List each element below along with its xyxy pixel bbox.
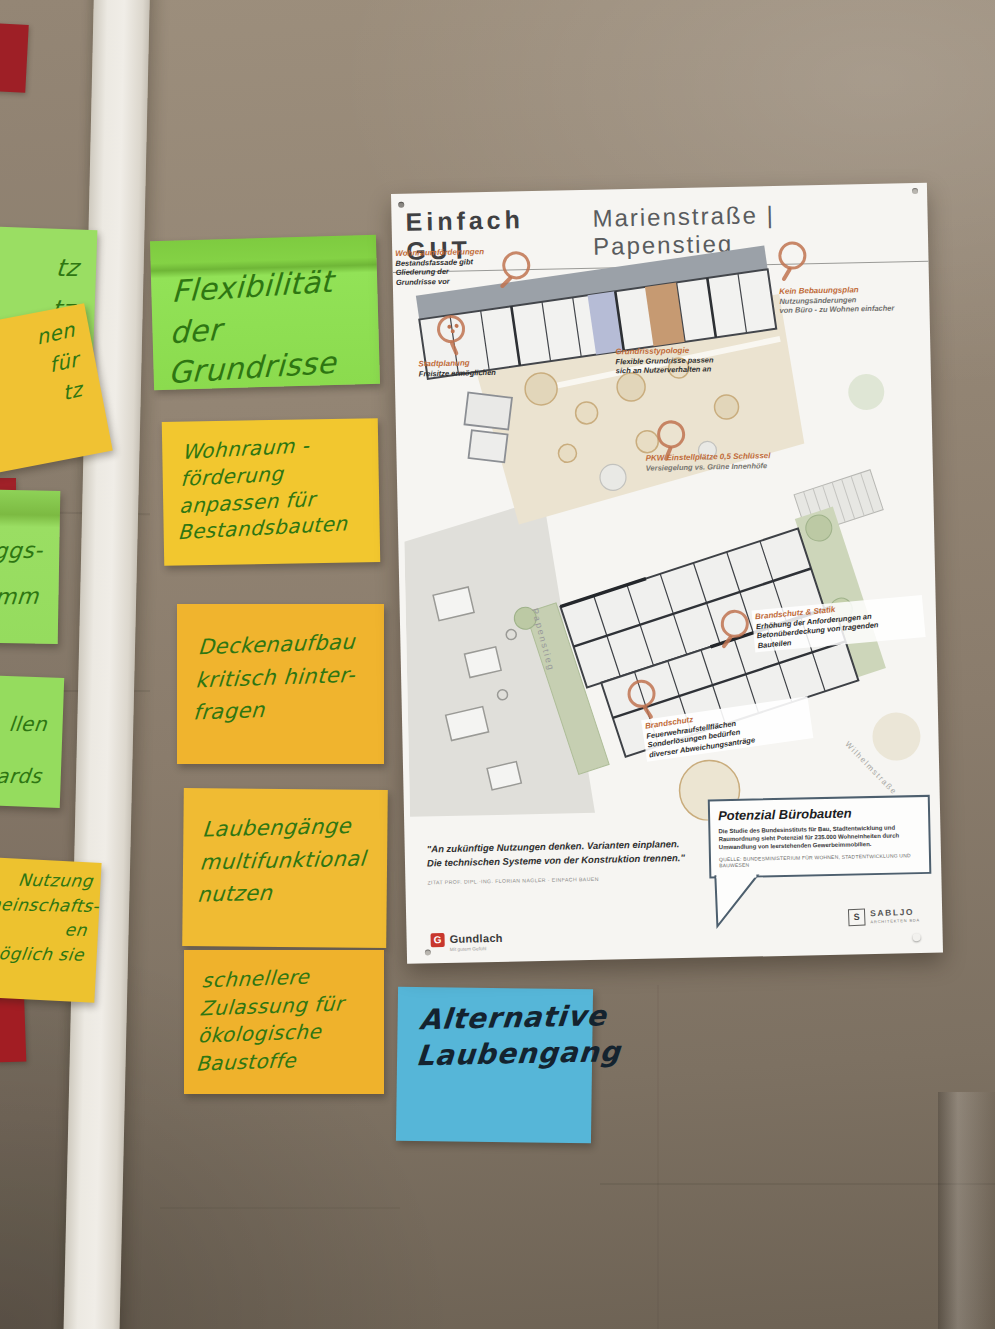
note-text: llen dards (0, 674, 64, 812)
poster-quote: "An zukünftige Nutzungen denken. Variant… (427, 836, 718, 885)
magnifier-icon (625, 680, 656, 723)
magnifier-icon (778, 241, 809, 284)
sticky-note-fragment: Nutzung meinschafts- en öglich sie (0, 857, 102, 1003)
note-text: schnellere Zulassung für ökologische Bau… (175, 943, 384, 1079)
speech-bubble-tail (711, 873, 772, 930)
note-text: ggs- mm (0, 487, 60, 621)
info-box-body: Die Studie des Bundesinstituts für Bau, … (718, 823, 920, 852)
cardboard-crease (600, 1183, 995, 1185)
annotation-body: Nutzungsänderungen von Büro - zu Wohnen … (779, 294, 929, 316)
quote-text: "An zukünftige Nutzungen denken. Variant… (427, 836, 718, 870)
sticky-note-deckenaufbau: Deckenaufbau kritisch hinter- fragen (177, 604, 384, 764)
sticky-note-fragment: ggs- mm (0, 489, 60, 644)
note-text: nen für tz (0, 297, 96, 439)
annotation-kein-bebauungsplan: Kein Bebauungsplan Nutzungsänderungen vo… (779, 284, 930, 316)
note-text: Deckenaufbau kritisch hinter- fragen (168, 597, 384, 730)
side-building (461, 393, 512, 463)
gundlach-logo-name: Gundlach (449, 932, 502, 945)
note-text: Flexibilität der Grundrisse (144, 227, 376, 395)
pin (912, 188, 918, 194)
sticky-note-zulassung: schnellere Zulassung für ökologische Bau… (184, 950, 384, 1094)
sticky-note-laubengaenge: Laubengänge multifunktional nutzen (182, 788, 388, 948)
pin (913, 933, 921, 941)
face-doodle-magnifier-icon (431, 313, 467, 359)
sticky-note-fragment: llen dards (0, 674, 64, 808)
note-text: Nutzung meinschafts- en öglich sie (0, 857, 102, 967)
gundlach-logo-icon: G (430, 933, 444, 947)
magnifier-icon (719, 609, 752, 653)
sticky-note-wohnraumfoerderung: Wohnraum - förderung anpassen für Bestan… (162, 418, 380, 566)
sabljo-logo-icon: S (848, 909, 866, 927)
pin (398, 202, 404, 208)
cardboard-crease (160, 1207, 400, 1209)
gundlach-logo-tagline: Mit gutem Gefühl (450, 946, 503, 952)
gundlach-logo: G Gundlach Mit gutem Gefühl (430, 932, 503, 953)
annotation-stadtplanung: Stadtplanung Freisitze ermöglichen (418, 357, 548, 379)
info-box-potenzial: Potenzial Bürobauten Die Studie des Bund… (708, 795, 932, 879)
info-box-title: Potenzial Bürobauten (718, 804, 920, 823)
annotation-wohnraumfoerderungen: Wohnraumförderungen Bestandsfassade gibt… (395, 247, 506, 287)
annotation-grundrisstypologie: Grundrisstypologie Flexible Grundrisse p… (615, 344, 776, 376)
annotation-body: Bestandsfassade gibt Gliederung der Grun… (395, 257, 506, 287)
poster: Einfach GUT Marienstraße | Papenstieg (391, 183, 943, 964)
info-box-source: QUELLE: BUNDESMINISTERIUM FÜR WOHNEN, ST… (719, 852, 921, 868)
sticky-note-flexibilitaet: Flexibilität der Grundrisse (150, 235, 380, 390)
cardboard-wall: tz tz nen für tz ggs- mm llen dards Nutz… (0, 0, 995, 1329)
sticky-note-alternative-laubengang: Alternative Laubengang (396, 987, 593, 1144)
note-text: Wohnraum - förderung anpassen für Bestan… (155, 411, 377, 548)
sabljo-logo-sub: ARCHITEKTEN BDA (870, 917, 920, 924)
cardboard-crease (657, 985, 659, 1329)
note-text: Laubengänge multifunktional nutzen (174, 783, 388, 912)
annotation-body: Flexible Grundrisse passen sich an Nutze… (615, 354, 775, 376)
annotation-pkw-einstellplaetze: PKW Einstellplätze 0,5 Schlüssel Versieg… (645, 450, 835, 473)
quote-source: ZITAT PROF. DIPL.-ING. FLORIAN NAGLER - … (427, 873, 717, 885)
sabljo-logo: S SABLJO ARCHITEKTEN BDA (848, 906, 920, 926)
cardboard-edge-highlight (938, 1092, 995, 1329)
red-note-fragment (0, 23, 29, 93)
note-text: Alternative Laubengang (391, 983, 593, 1076)
